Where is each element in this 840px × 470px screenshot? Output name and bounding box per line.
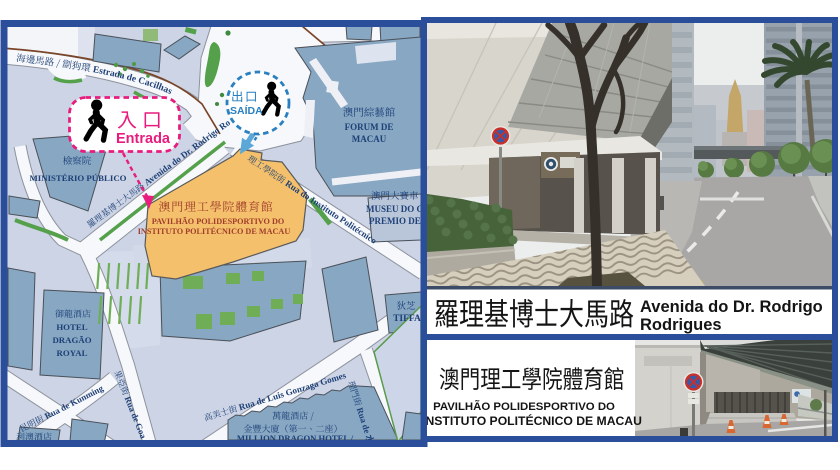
svg-text:PREMIO DE: PREMIO DE — [369, 216, 421, 226]
svg-text:MACAU: MACAU — [352, 134, 387, 144]
svg-text:FORUM DE: FORUM DE — [345, 122, 394, 132]
svg-text:澳門大賽車: 澳門大賽車 — [371, 188, 419, 202]
svg-text:PAVILHÃO POLIDESPORTIVO DO: PAVILHÃO POLIDESPORTIVO DO — [152, 217, 285, 226]
svg-text:澳門綜藝館: 澳門綜藝館 — [343, 105, 396, 120]
svg-text:羅理基博士大馬路: 羅理基博士大馬路 — [434, 290, 634, 335]
svg-text:Avenida do Dr. Rodrigo: Avenida do Dr. Rodrigo — [640, 298, 823, 316]
svg-text:MINISTÉRIO PÚBLICO: MINISTÉRIO PÚBLICO — [29, 173, 126, 183]
svg-text:DRAGÃO: DRAGÃO — [52, 335, 91, 345]
svg-text:入口: 入口 — [117, 104, 167, 133]
svg-text:HOTEL: HOTEL — [56, 322, 87, 332]
svg-text:MUSEU DO G: MUSEU DO G — [366, 204, 424, 214]
svg-text:INSTITUTO POLITÉCNICO DE MACAU: INSTITUTO POLITÉCNICO DE MACAU — [422, 413, 642, 428]
svg-text:檢察院: 檢察院 — [63, 153, 92, 167]
svg-text:Entrada: Entrada — [116, 131, 171, 147]
svg-text:TIFFA: TIFFA — [393, 314, 421, 324]
svg-text:澳門理工學院體育館: 澳門理工學院體育館 — [439, 360, 624, 396]
svg-text:INSTITUTO POLITÉCNICO DE MACAU: INSTITUTO POLITÉCNICO DE MACAU — [138, 226, 291, 236]
svg-text:澳門理工學院體育館: 澳門理工學院體育館 — [158, 198, 273, 215]
svg-text:萬龍酒店 /: 萬龍酒店 / — [272, 409, 314, 422]
svg-text:御龍酒店: 御龍酒店 — [55, 307, 91, 320]
svg-text:狄芝: 狄芝 — [396, 298, 416, 312]
svg-text:出口: 出口 — [231, 86, 259, 105]
svg-text:SAÍDA: SAÍDA — [230, 104, 263, 117]
svg-text:PAVILHÃO POLIDESPORTIVO DO: PAVILHÃO POLIDESPORTIVO DO — [433, 400, 615, 413]
svg-text:Rodrigues: Rodrigues — [640, 316, 722, 334]
svg-text:ROYAL: ROYAL — [57, 348, 88, 358]
